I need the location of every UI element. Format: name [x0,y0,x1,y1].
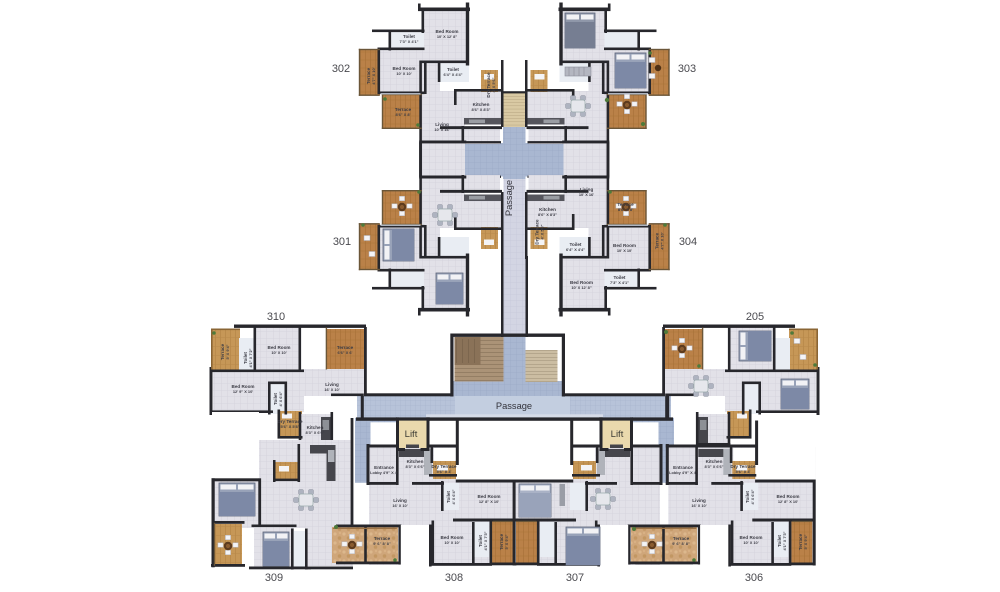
svg-text:10' X 10': 10' X 10' [444,540,459,545]
svg-text:8'6" X 8'3": 8'6" X 8'3" [538,212,557,217]
svg-text:8'3" X 6'6": 8'3" X 6'6" [705,464,724,469]
svg-text:10' X 10': 10' X 10' [396,71,411,76]
svg-text:8'6" X 8': 8'6" X 8' [396,112,411,117]
svg-text:8'6" X 8': 8'6" X 8' [618,207,633,212]
svg-text:10' X 12' 8": 10' X 12' 8" [437,34,458,39]
svg-text:Passage: Passage [496,401,532,411]
svg-text:8'6" X 8'3": 8'6" X 8'3" [472,107,491,112]
svg-text:309: 309 [265,572,283,584]
svg-text:10' X 12' 8": 10' X 12' 8" [571,285,592,290]
svg-text:6'6" X 6': 6'6" X 6' [338,350,353,355]
svg-text:5' X 9'4": 5' X 9'4" [803,534,808,549]
svg-text:4' X 6'4": 4' X 6'4" [750,489,755,504]
svg-text:9' 6" 8' 8": 9' 6" 8' 8" [373,541,391,546]
svg-text:308: 308 [445,572,463,584]
svg-text:4' X 6'4": 4' X 6'4" [451,489,456,504]
svg-text:12' 8" X 10': 12' 8" X 10' [479,499,499,504]
svg-text:4' X 5'6": 4' X 5'6" [491,77,496,92]
svg-text:8'3" X 6'6": 8'3" X 6'6" [306,430,325,435]
svg-text:Lobby 4'9" X 4': Lobby 4'9" X 4' [370,470,398,475]
svg-text:10' X 10': 10' X 10' [743,540,758,545]
svg-text:12' 8" X 10': 12' 8" X 10' [778,499,798,504]
svg-text:16' X 10': 16' X 10' [392,503,407,508]
svg-text:303: 303 [678,63,696,75]
svg-text:307: 307 [566,572,584,584]
svg-text:10' X 16': 10' X 16' [434,127,449,132]
svg-text:Passage: Passage [504,180,514,216]
svg-text:7'3" X 4'1": 7'3" X 4'1" [610,280,629,285]
svg-text:4'7" X 10': 4'7" X 10' [371,67,376,84]
svg-text:4' X 6'4": 4' X 6'4" [278,391,283,406]
svg-text:301: 301 [333,236,351,248]
svg-text:16' X 10': 16' X 10' [324,387,339,392]
svg-text:6'4" X 4'4": 6'4" X 4'4" [444,72,463,77]
svg-text:302: 302 [332,63,350,75]
svg-text:9' 6" 8' 8": 9' 6" 8' 8" [672,541,690,546]
svg-text:Lift: Lift [611,429,624,440]
svg-text:10' X 10': 10' X 10' [271,350,286,355]
svg-text:4'7" X 10': 4'7" X 10' [660,232,665,249]
svg-text:Lift: Lift [405,429,418,440]
svg-text:4'1" X 7'3": 4'1" X 7'3" [782,531,787,550]
svg-text:6'4" X 4'4": 6'4" X 4'4" [566,247,585,252]
svg-text:306: 306 [745,572,763,584]
svg-text:10' X 16': 10' X 16' [579,192,594,197]
svg-text:5' X 9'4": 5' X 9'4" [225,344,230,359]
svg-text:12' 9" X 10': 12' 9" X 10' [233,389,253,394]
svg-text:5'6" X 4': 5'6" X 4' [736,469,751,474]
svg-text:5' X 9'4": 5' X 9'4" [504,534,509,549]
svg-text:4'1" X 7'2": 4'1" X 7'2" [248,348,253,367]
svg-text:5'6" X 5'8": 5'6" X 5'8" [281,424,300,429]
svg-text:310: 310 [267,311,285,323]
svg-text:10' X 10': 10' X 10' [617,248,632,253]
svg-text:8'3" X 6'6": 8'3" X 6'6" [406,464,425,469]
svg-text:304: 304 [679,236,697,248]
svg-text:4'1" X 7'3": 4'1" X 7'3" [483,531,488,550]
svg-text:205: 205 [746,311,764,323]
svg-text:16' X 10': 16' X 10' [691,503,706,508]
svg-text:5'6" X 4': 5'6" X 4' [437,469,452,474]
svg-text:Lobby 4'9" X 4': Lobby 4'9" X 4' [669,470,697,475]
svg-text:7'3" X 4'1": 7'3" X 4'1" [400,39,419,44]
svg-text:4' X 5'6": 4' X 5'6" [540,224,545,239]
